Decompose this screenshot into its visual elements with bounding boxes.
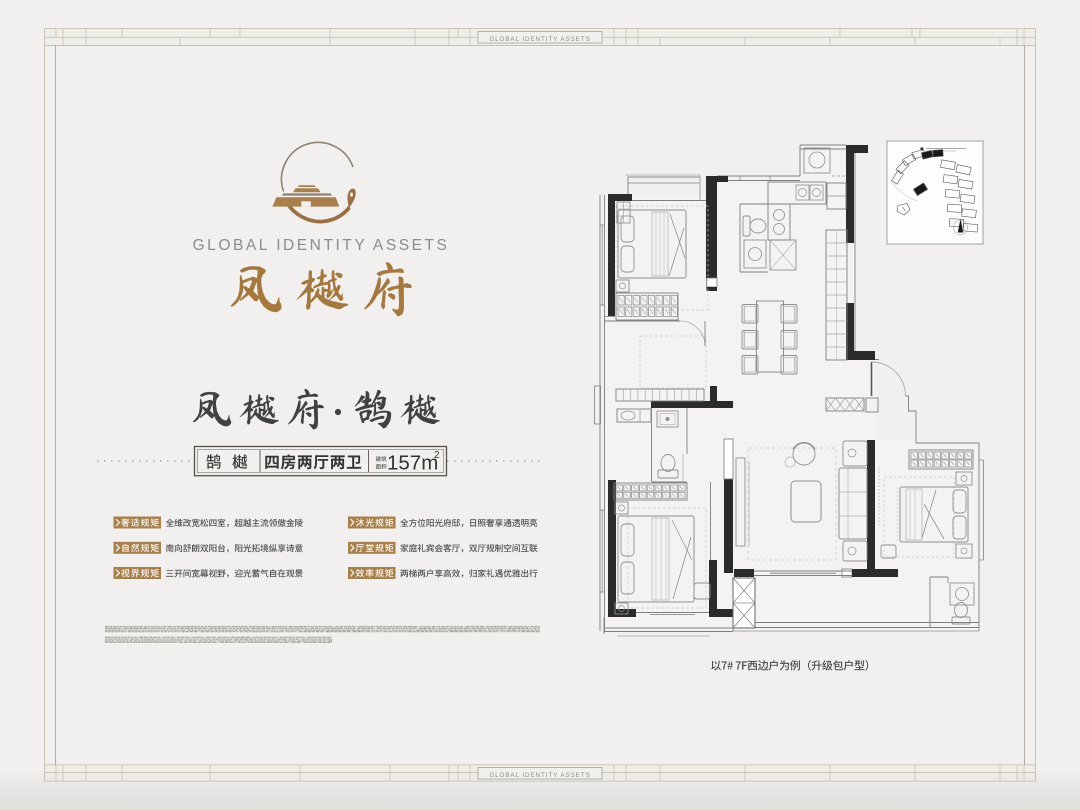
svg-text:GLOBAL IDENTITY ASSETS: GLOBAL IDENTITY ASSETS (193, 237, 450, 254)
svg-text:GLOBAL IDENTITY ASSETS: GLOBAL IDENTITY ASSETS (489, 36, 590, 43)
svg-text:157m: 157m (387, 452, 438, 475)
svg-text:GLOBAL IDENTITY ASSETS: GLOBAL IDENTITY ASSETS (489, 772, 590, 779)
svg-text:2: 2 (434, 450, 440, 461)
